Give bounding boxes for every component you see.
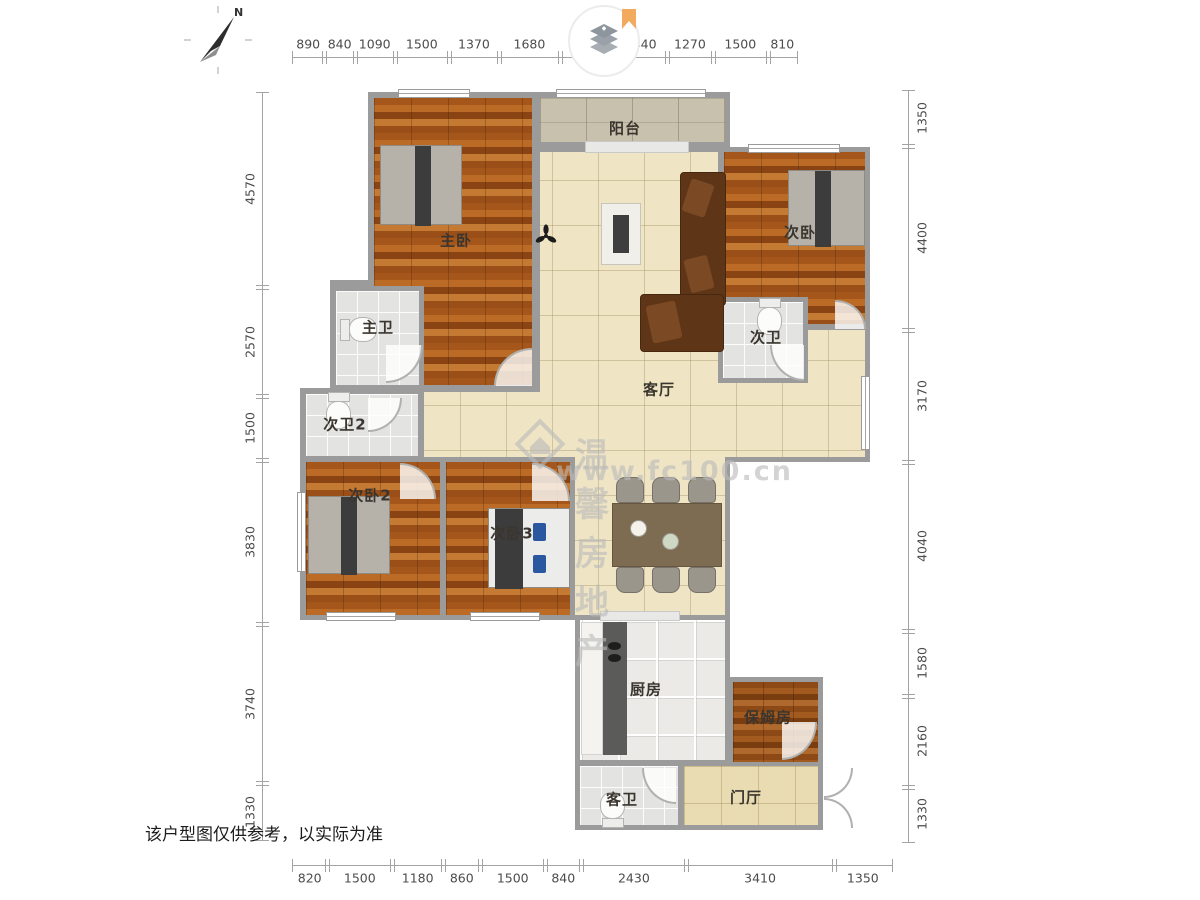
tv-stand-icon — [601, 203, 641, 265]
window — [470, 612, 540, 621]
dim-tick — [497, 51, 498, 64]
dim-tick — [441, 859, 442, 872]
window — [398, 89, 470, 98]
window — [297, 492, 306, 572]
dim-value: 820 — [298, 871, 322, 886]
dim-tick — [902, 328, 915, 329]
dim-tick — [256, 92, 269, 93]
dim-tick — [583, 859, 584, 872]
room-label-balcony: 阳台 — [609, 118, 641, 139]
dim-value: 1500 — [406, 37, 438, 52]
sofa-icon — [680, 172, 726, 306]
bed-icon — [308, 496, 390, 574]
chair-icon — [652, 567, 680, 593]
dim-tick — [292, 859, 293, 872]
room-label-bath2: 次卫 — [750, 327, 782, 348]
dim-value: 840 — [328, 37, 352, 52]
dim-tick — [393, 51, 394, 64]
disclaimer-text: 该户型图仅供参考，以实际为准 — [145, 820, 383, 845]
dim-value: 4400 — [915, 222, 930, 254]
dim-line-bottom — [292, 865, 892, 866]
dim-value: 840 — [551, 871, 575, 886]
stove-burner-icon — [608, 642, 621, 650]
dim-tick — [669, 51, 670, 64]
balcony-opening — [585, 141, 689, 153]
dim-value: 1090 — [359, 37, 391, 52]
dim-value: 1350 — [915, 102, 930, 134]
kitchen-counter — [581, 622, 603, 755]
dim-tick — [256, 285, 269, 286]
dim-value: 2430 — [618, 871, 650, 886]
dim-line-right — [908, 90, 909, 842]
dim-tick — [445, 859, 446, 872]
room-label-maid: 保姆房 — [744, 707, 792, 728]
dim-tick — [357, 51, 358, 64]
dim-tick — [902, 789, 915, 790]
dim-value: 3830 — [243, 526, 258, 558]
dim-tick — [902, 629, 915, 630]
dim-value: 1680 — [514, 37, 546, 52]
dim-tick — [256, 781, 269, 782]
room-label-foyer: 门厅 — [730, 787, 762, 808]
dim-tick — [902, 464, 915, 465]
dim-tick — [292, 51, 293, 64]
dim-tick — [797, 51, 798, 64]
dim-value: 4040 — [915, 530, 930, 562]
dim-tick — [256, 394, 269, 395]
chair-icon — [652, 477, 680, 503]
bed-icon — [488, 508, 570, 588]
dim-tick — [684, 859, 685, 872]
dim-tick — [256, 289, 269, 290]
window — [748, 144, 840, 153]
chair-icon — [616, 567, 644, 593]
room-label-bedroom4: 次卧3 — [490, 523, 533, 544]
dim-tick — [256, 398, 269, 399]
dim-tick — [665, 51, 666, 64]
dim-tick — [478, 859, 479, 872]
chair-icon — [688, 477, 716, 503]
dim-tick — [902, 785, 915, 786]
dim-value: 2160 — [915, 726, 930, 758]
room-label-master-bath: 主卫 — [362, 317, 394, 338]
dim-tick — [902, 332, 915, 333]
room-label-bedroom2: 次卧 — [784, 222, 816, 243]
dim-tick — [766, 51, 767, 64]
dim-tick — [394, 859, 395, 872]
plate-icon — [662, 533, 679, 550]
bed-icon — [380, 145, 462, 225]
dim-value: 2570 — [243, 326, 258, 358]
dim-tick — [325, 859, 326, 872]
dim-tick — [326, 51, 327, 64]
fan-icon — [534, 224, 558, 248]
dim-tick — [902, 694, 915, 695]
dim-value: 1500 — [724, 37, 756, 52]
dim-value: 810 — [770, 37, 794, 52]
dim-tick — [543, 859, 544, 872]
dim-tick — [353, 51, 354, 64]
dim-value: 1500 — [497, 871, 529, 886]
room-label-guest-bath: 客卫 — [606, 789, 638, 810]
dim-value: 1500 — [344, 871, 376, 886]
dim-value: 890 — [296, 37, 320, 52]
entry-door-leaf — [824, 798, 853, 828]
dim-tick — [902, 698, 915, 699]
dim-tick — [256, 626, 269, 627]
chair-icon — [616, 477, 644, 503]
sofa-chaise-icon — [640, 294, 724, 352]
room-label-bedroom3: 次卧2 — [348, 485, 391, 506]
dim-value: 1500 — [243, 413, 258, 445]
window — [861, 376, 870, 450]
dim-tick — [770, 51, 771, 64]
dim-tick — [256, 785, 269, 786]
dim-value: 1350 — [847, 871, 879, 886]
plate-icon — [630, 520, 647, 537]
dim-value: 1180 — [402, 871, 434, 886]
dim-tick — [836, 859, 837, 872]
dim-value: 3170 — [915, 380, 930, 412]
dim-tick — [482, 859, 483, 872]
room-label-bath3: 次卫2 — [323, 414, 366, 435]
dim-tick — [397, 51, 398, 64]
brand-logo-icon — [563, 2, 647, 82]
window — [556, 89, 706, 98]
dim-value: 3410 — [744, 871, 776, 886]
dim-tick — [322, 51, 323, 64]
room-label-master-bedroom: 主卧 — [440, 230, 472, 251]
dim-tick — [558, 51, 559, 64]
dim-tick — [451, 51, 452, 64]
dim-tick — [902, 148, 915, 149]
dim-tick — [902, 633, 915, 634]
stove-burner-icon — [608, 654, 621, 662]
dim-tick — [892, 859, 893, 872]
dim-value: 4570 — [243, 174, 258, 206]
dim-line-left — [262, 92, 263, 840]
dim-tick — [547, 859, 548, 872]
dim-tick — [902, 90, 915, 91]
dim-tick — [256, 462, 269, 463]
dim-line-top — [292, 57, 797, 58]
dim-tick — [902, 144, 915, 145]
window — [326, 612, 396, 621]
dim-tick — [688, 859, 689, 872]
dim-value: 1330 — [915, 798, 930, 830]
chair-icon — [688, 567, 716, 593]
room-label-living: 客厅 — [643, 379, 675, 400]
dim-tick — [579, 859, 580, 872]
dim-tick — [711, 51, 712, 64]
kitchen-opening — [600, 611, 680, 621]
entry-door-leaf — [824, 768, 853, 798]
dim-tick — [501, 51, 502, 64]
dim-tick — [902, 842, 915, 843]
dim-value: 1370 — [458, 37, 490, 52]
compass-icon: N — [178, 0, 258, 80]
dim-tick — [832, 859, 833, 872]
dim-tick — [715, 51, 716, 64]
dim-value: 1580 — [915, 648, 930, 680]
dim-value: 1270 — [674, 37, 706, 52]
dim-tick — [329, 859, 330, 872]
floorplan-stage: N — [0, 0, 1200, 900]
dim-tick — [390, 859, 391, 872]
dim-tick — [447, 51, 448, 64]
dim-tick — [902, 460, 915, 461]
dim-tick — [256, 458, 269, 459]
compass-north-label: N — [234, 6, 243, 19]
dim-value: 860 — [450, 871, 474, 886]
dim-value: 3740 — [243, 688, 258, 720]
dim-tick — [256, 622, 269, 623]
room-label-kitchen: 厨房 — [630, 679, 662, 700]
